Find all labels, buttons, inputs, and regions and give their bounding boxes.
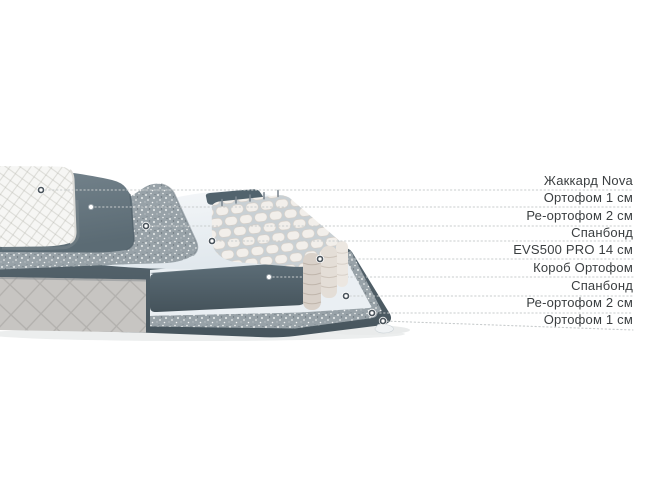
marker-orthofoam-bottom xyxy=(379,317,387,325)
marker-evs500 xyxy=(316,255,324,263)
layer-jacquard-cover xyxy=(0,166,78,249)
marker-re-orthofoam-bottom xyxy=(368,309,376,317)
marker-spunbond-bottom xyxy=(342,292,350,300)
corner-sheet-curl xyxy=(375,324,394,333)
spring-cylinder-back xyxy=(336,241,348,287)
leader-line-orthofoam-bottom xyxy=(383,321,633,330)
mattress-layers-diagram: Жаккард NovaОртофом 1 смРе-ортофом 2 смС… xyxy=(0,0,650,488)
base-quilted-side xyxy=(0,277,146,333)
marker-spunbond-top xyxy=(208,237,216,245)
marker-orthofoam-top xyxy=(88,204,94,210)
marker-jacquard xyxy=(37,186,45,194)
marker-re-orthofoam-top xyxy=(142,222,150,230)
marker-korob xyxy=(266,274,272,280)
mattress-illustration xyxy=(0,0,650,488)
spring-cylinder-mid xyxy=(321,246,337,298)
